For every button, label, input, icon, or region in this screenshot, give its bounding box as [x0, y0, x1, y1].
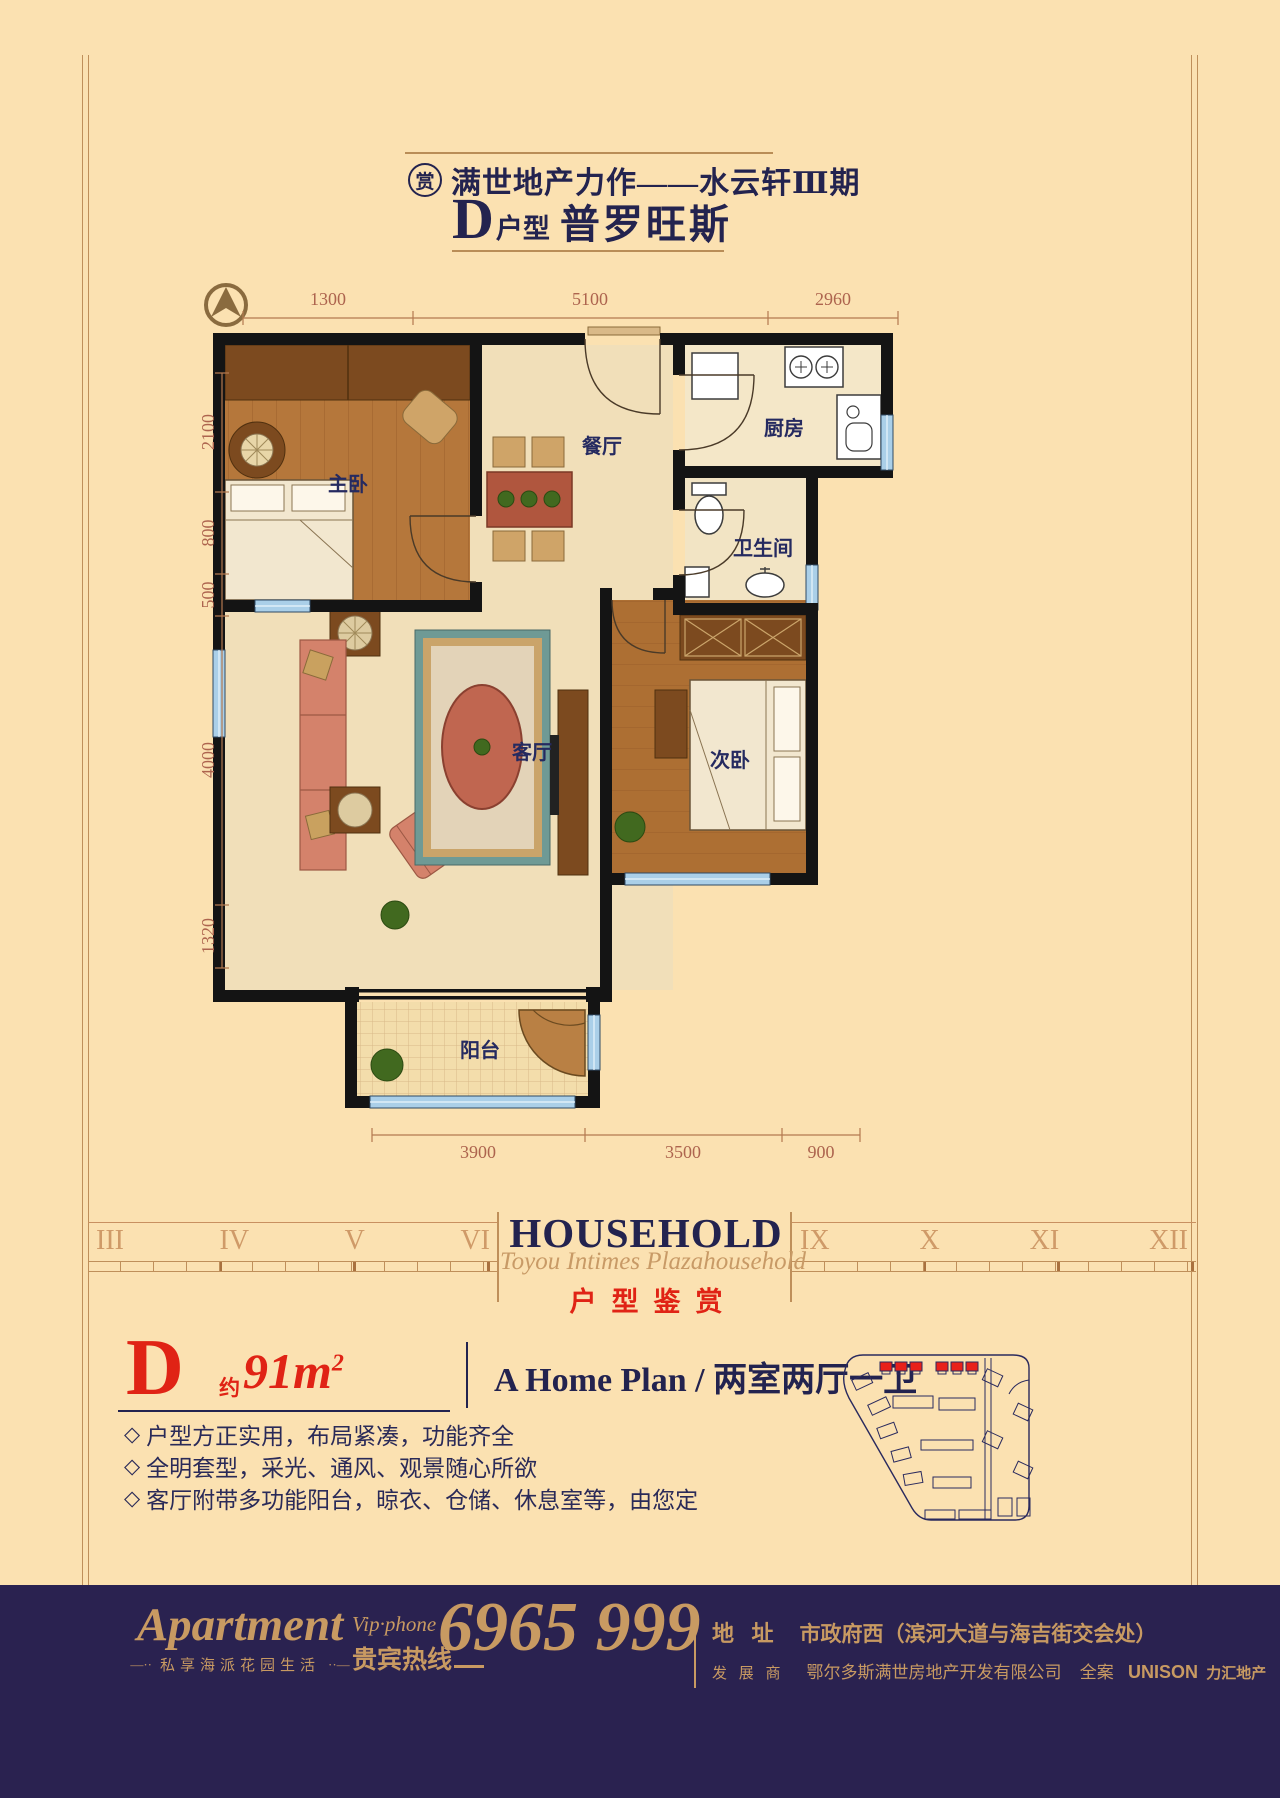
- site-highlight-buildings: [880, 1362, 978, 1374]
- stove: [785, 347, 843, 387]
- feature-list: ◇ 户型方正实用，布局紧凑，功能齐全 ◇ 全明套型，采光、通风、观景随心所欲 ◇…: [124, 1418, 698, 1514]
- flourish-left: —··: [130, 1657, 152, 1673]
- ruler-numeral: XI: [1030, 1225, 1060, 1257]
- dining-chair: [532, 437, 564, 467]
- unit-area-exp: 2: [332, 1350, 344, 1376]
- dim-left-3: 500: [198, 582, 218, 609]
- balcony-plant: [371, 1049, 403, 1081]
- tv-cabinet: [558, 690, 588, 875]
- feature-text: 客厅附带多功能阳台，晾衣、仓储、休息室等，由您定: [146, 1481, 698, 1515]
- brand-tagline: 私享海派花园生活: [160, 1654, 320, 1675]
- fridge: [692, 353, 738, 399]
- band-center: HOUSEHOLD Toyou Intimes Plazahousehold 户…: [500, 1213, 792, 1319]
- room-label-kitchen: 厨房: [764, 416, 804, 440]
- dim-top-2: 5100: [572, 289, 608, 309]
- site-buildings: [852, 1369, 1033, 1519]
- basin: [746, 573, 784, 597]
- feature-item: ◇ 全明套型，采光、通风、观景随心所欲: [124, 1450, 698, 1482]
- address-value: 市政府西（滨河大道与海吉街交会处）: [800, 1618, 1157, 1648]
- flourish-right: ··—: [328, 1657, 350, 1673]
- room-label-dining: 餐厅: [582, 434, 622, 458]
- footer-brand: Apartment —·· 私享海派花园生活 ··—: [110, 1598, 370, 1675]
- toilet: [695, 496, 723, 534]
- developer-name: 鄂尔多斯满世房地产开发有限公司: [807, 1663, 1062, 1682]
- toilet-tank: [692, 483, 726, 495]
- room-label-bedroom2: 次卧: [710, 748, 750, 772]
- dining-chair: [493, 437, 525, 467]
- plant: [615, 812, 645, 842]
- nightstand: [655, 690, 687, 758]
- seal-char: 赏: [415, 167, 434, 194]
- ruler-numeral: IV: [220, 1225, 250, 1257]
- feature-item: ◇ 户型方正实用，布局紧凑，功能齐全: [124, 1418, 698, 1450]
- hotline-number: 6965 999: [438, 1593, 701, 1663]
- dim-left-1: 2100: [198, 414, 218, 450]
- dim-bottom-1: 3900: [460, 1142, 496, 1162]
- brand-tagline-row: —·· 私享海派花园生活 ··—: [110, 1654, 370, 1675]
- diamond-bullet-icon: ◇: [124, 1486, 140, 1511]
- footer-divider: [694, 1610, 696, 1688]
- dining-chair: [532, 531, 564, 561]
- bedroom2-wardrobe: [680, 615, 806, 660]
- dim-bottom-3: 900: [808, 1142, 835, 1162]
- header-rule-bottom: [452, 250, 724, 252]
- ruler-right: IX X XI XII: [792, 1222, 1196, 1272]
- dim-top-3: 2960: [815, 289, 851, 309]
- ruler-numeral: V: [345, 1225, 365, 1257]
- unit-name: 普罗旺斯: [560, 192, 732, 250]
- band-caption: 户型鉴赏: [500, 1280, 792, 1319]
- dining-chair: [493, 531, 525, 561]
- agency-logo: UNISON: [1128, 1662, 1198, 1682]
- band-subtitle: Toyou Intimes Plazahousehold: [500, 1248, 792, 1276]
- dim-left-4: 4000: [198, 742, 218, 778]
- entry-threshold: [588, 327, 660, 335]
- ruler-numeral: XII: [1149, 1225, 1188, 1257]
- diamond-bullet-icon: ◇: [124, 1454, 140, 1479]
- header-line2: D 户型 普罗旺斯: [452, 190, 782, 250]
- developer-label: 发 展 商: [712, 1662, 785, 1683]
- unit-approx: 约: [219, 1372, 240, 1402]
- room-label-master: 主卧: [328, 472, 368, 496]
- ruler-left: III IV V VI: [88, 1222, 498, 1272]
- room-label-living: 客厅: [511, 740, 552, 764]
- developer-value: 鄂尔多斯满世房地产开发有限公司 全案 UNISON 力汇地产: [807, 1658, 1267, 1683]
- unit-area-value: 91m: [243, 1343, 332, 1399]
- ruler-left-endbar: [497, 1212, 499, 1302]
- unit-underline: [118, 1410, 450, 1412]
- agency-name: 力汇地产: [1206, 1665, 1266, 1682]
- plant: [381, 901, 409, 929]
- room-label-balcony: 阳台: [460, 1038, 500, 1062]
- footer-address-block: 地 址 市政府西（滨河大道与海吉街交会处） 发 展 商 鄂尔多斯满世房地产开发有…: [712, 1616, 1266, 1683]
- dim-left-2: 800: [198, 520, 218, 547]
- dim-left-5: 1320: [198, 918, 218, 954]
- diamond-bullet-icon: ◇: [124, 1422, 140, 1447]
- site-plan: [833, 1350, 1047, 1536]
- kitchen-sink: [837, 395, 881, 459]
- dim-bottom-2: 3500: [665, 1142, 701, 1162]
- ruler-numeral: X: [919, 1225, 939, 1257]
- room-label-bath: 卫生间: [733, 537, 793, 560]
- seal-icon: 赏: [408, 163, 442, 197]
- hotline-text: 贵宾热线: [352, 1647, 452, 1674]
- feature-item: ◇ 客厅附带多功能阳台，晾衣、仓储、休息室等，由您定: [124, 1482, 698, 1514]
- dim-top-1: 1300: [310, 289, 346, 309]
- unit-area: 91m2: [243, 1346, 344, 1396]
- unit-letter: D: [452, 190, 494, 248]
- unit-letter-big: D: [126, 1328, 184, 1408]
- agency-note: 全案: [1080, 1663, 1114, 1682]
- ruler-numeral: VI: [460, 1225, 490, 1257]
- feature-text: 户型方正实用，布局紧凑，功能齐全: [146, 1417, 514, 1451]
- unit-type-label: 户型: [496, 207, 550, 246]
- header-rule-top: [405, 152, 773, 154]
- ruler-numeral: III: [96, 1225, 124, 1257]
- brand-script: Apartment: [110, 1598, 370, 1652]
- feature-text: 全明套型，采光、通风、观景随心所欲: [146, 1449, 537, 1483]
- floor-plan: N: [180, 265, 1010, 1165]
- address-label: 地 址: [712, 1616, 780, 1648]
- poster-page: 赏 满世地产力作——水云轩Ⅲ期 D 户型 普罗旺斯 N: [0, 0, 1280, 1798]
- unit-divider: [466, 1342, 468, 1408]
